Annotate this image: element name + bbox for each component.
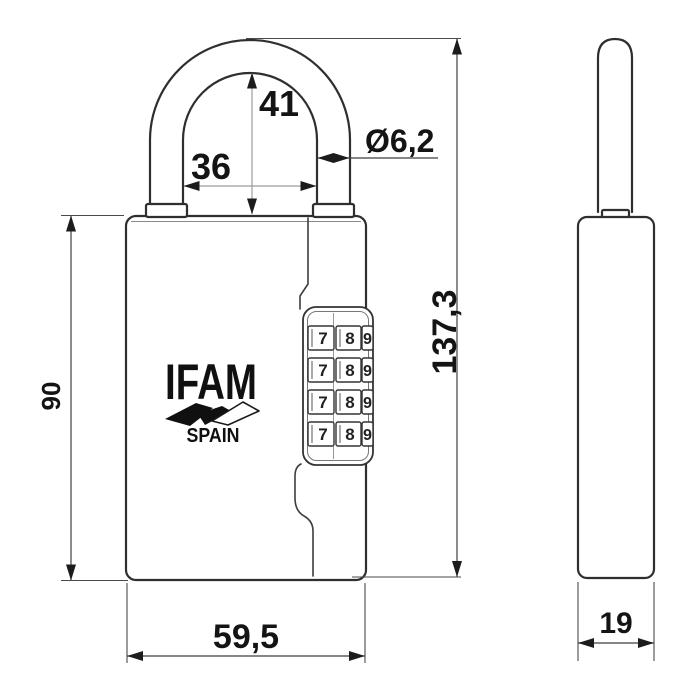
wheel-digit: 7 [318, 393, 327, 412]
dimension-label: 19 [599, 607, 632, 640]
dimension-label: 90 [36, 382, 66, 411]
side-shackle-rod [598, 39, 632, 212]
wheel-digit: 9 [363, 331, 372, 348]
shackle-ferrule-right [313, 204, 354, 217]
wheel-row: 7 8 9 [308, 326, 373, 350]
wheel-digit: 9 [363, 395, 372, 412]
wheel-row: 7 8 9 [308, 358, 373, 382]
wheel-digit: 9 [363, 427, 372, 444]
front-view: 7 8 9 7 8 9 7 [126, 40, 373, 580]
wheel-digit: 7 [318, 361, 327, 380]
dimension-shackle-inner-height: 41 [252, 73, 299, 214]
wheel-row: 7 8 9 [308, 390, 373, 414]
dimension-body-depth: 19 [578, 582, 654, 661]
wheel-digit: 7 [318, 425, 327, 444]
padlock-technical-drawing: 7 8 9 7 8 9 7 [0, 0, 700, 700]
dimension-shackle-inner-width: 36 [184, 146, 316, 187]
dimension-label: 36 [191, 146, 231, 187]
wheel-digit: 8 [345, 393, 354, 412]
wheel-digit: 7 [318, 329, 327, 348]
dimension-label: Ø6,2 [365, 123, 434, 159]
wheel-digit: 9 [363, 363, 372, 380]
dimension-label: 41 [259, 83, 299, 124]
dimension-label: 59,5 [213, 618, 279, 656]
wheel-digit: 8 [345, 361, 354, 380]
brand-country: SPAIN [187, 425, 240, 447]
drawing-canvas: 7 8 9 7 8 9 7 [0, 0, 700, 700]
dimension-label: 137,3 [426, 289, 464, 374]
side-view [578, 39, 654, 578]
dimension-body-width: 59,5 [127, 583, 365, 663]
shackle-ferrule-left [146, 204, 187, 217]
side-body [578, 217, 654, 578]
dimension-shackle-diameter: Ø6,2 [318, 123, 438, 159]
dimension-body-height: 90 [36, 216, 128, 581]
combination-wheel-housing: 7 8 9 7 8 9 7 [303, 307, 373, 465]
wheel-row: 7 8 9 [308, 422, 373, 446]
wheel-digit: 8 [345, 329, 354, 348]
shackle-outer-arch [150, 40, 350, 206]
wheel-digit: 8 [345, 425, 354, 444]
